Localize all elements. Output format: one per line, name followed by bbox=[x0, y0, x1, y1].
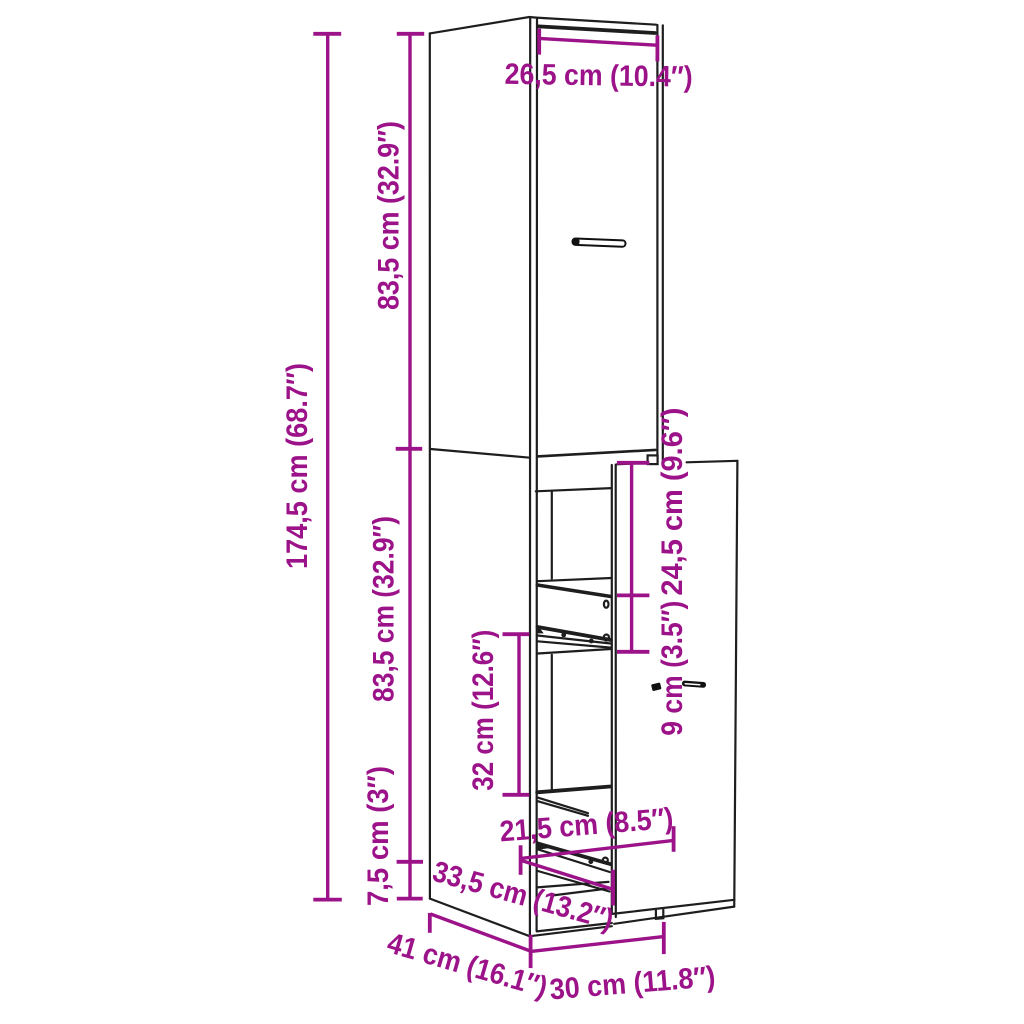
svg-text:24,5 cm (9.6″): 24,5 cm (9.6″) bbox=[656, 408, 689, 596]
svg-text:7,5 cm (3″): 7,5 cm (3″) bbox=[362, 766, 395, 906]
svg-text:83,5 cm (32.9″): 83,5 cm (32.9″) bbox=[373, 121, 406, 310]
svg-text:26,5 cm (10.4″): 26,5 cm (10.4″) bbox=[504, 58, 692, 94]
svg-text:174,5 cm (68.7″): 174,5 cm (68.7″) bbox=[281, 363, 314, 569]
svg-text:83,5 cm (32.9″): 83,5 cm (32.9″) bbox=[368, 516, 401, 702]
svg-text:9 cm (3.5″): 9 cm (3.5″) bbox=[656, 601, 689, 736]
svg-text:32 cm (12.6″): 32 cm (12.6″) bbox=[467, 630, 500, 791]
